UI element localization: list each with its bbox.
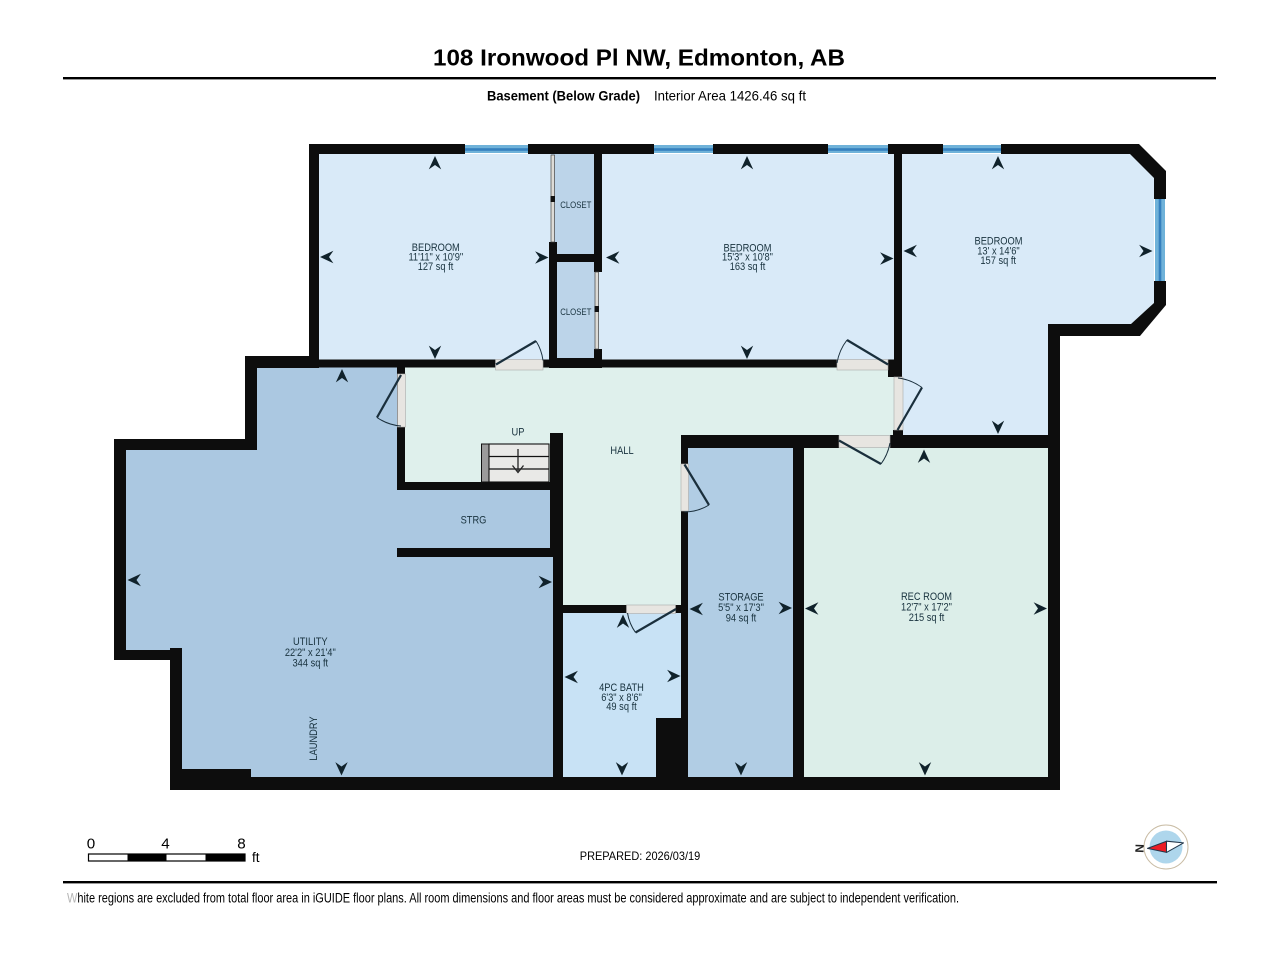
svg-text:CLOSET: CLOSET <box>560 199 592 210</box>
svg-text:White regions are excluded fro: White regions are excluded from total fl… <box>67 891 959 906</box>
svg-text:157 sq ft: 157 sq ft <box>980 255 1016 267</box>
svg-text:UTILITY: UTILITY <box>293 636 328 648</box>
svg-text:N: N <box>1133 844 1147 853</box>
svg-text:0: 0 <box>87 836 95 853</box>
svg-text:UP: UP <box>512 427 525 439</box>
svg-text:344 sq ft: 344 sq ft <box>292 658 328 670</box>
svg-text:8: 8 <box>237 836 245 853</box>
svg-text:163 sq ft: 163 sq ft <box>730 261 766 273</box>
svg-text:94 sq ft: 94 sq ft <box>726 613 757 625</box>
svg-text:Basement (Below Grade): Basement (Below Grade) <box>487 88 640 104</box>
svg-text:STRG: STRG <box>461 515 487 527</box>
svg-text:4: 4 <box>161 836 169 853</box>
svg-text:108 Ironwood Pl NW, Edmonton,: 108 Ironwood Pl NW, Edmonton, AB <box>433 45 845 71</box>
svg-text:Interior Area 1426.46 sq ft: Interior Area 1426.46 sq ft <box>654 88 806 104</box>
svg-text:127 sq ft: 127 sq ft <box>418 261 454 273</box>
svg-text:49 sq ft: 49 sq ft <box>606 701 637 713</box>
svg-text:CLOSET: CLOSET <box>560 306 592 317</box>
svg-text:PREPARED: 2026/03/19: PREPARED: 2026/03/19 <box>580 849 701 863</box>
svg-text:LAUNDRY: LAUNDRY <box>308 716 320 760</box>
svg-text:ft: ft <box>252 850 260 865</box>
svg-text:215 sq ft: 215 sq ft <box>909 612 945 624</box>
svg-text:HALL: HALL <box>610 445 633 457</box>
